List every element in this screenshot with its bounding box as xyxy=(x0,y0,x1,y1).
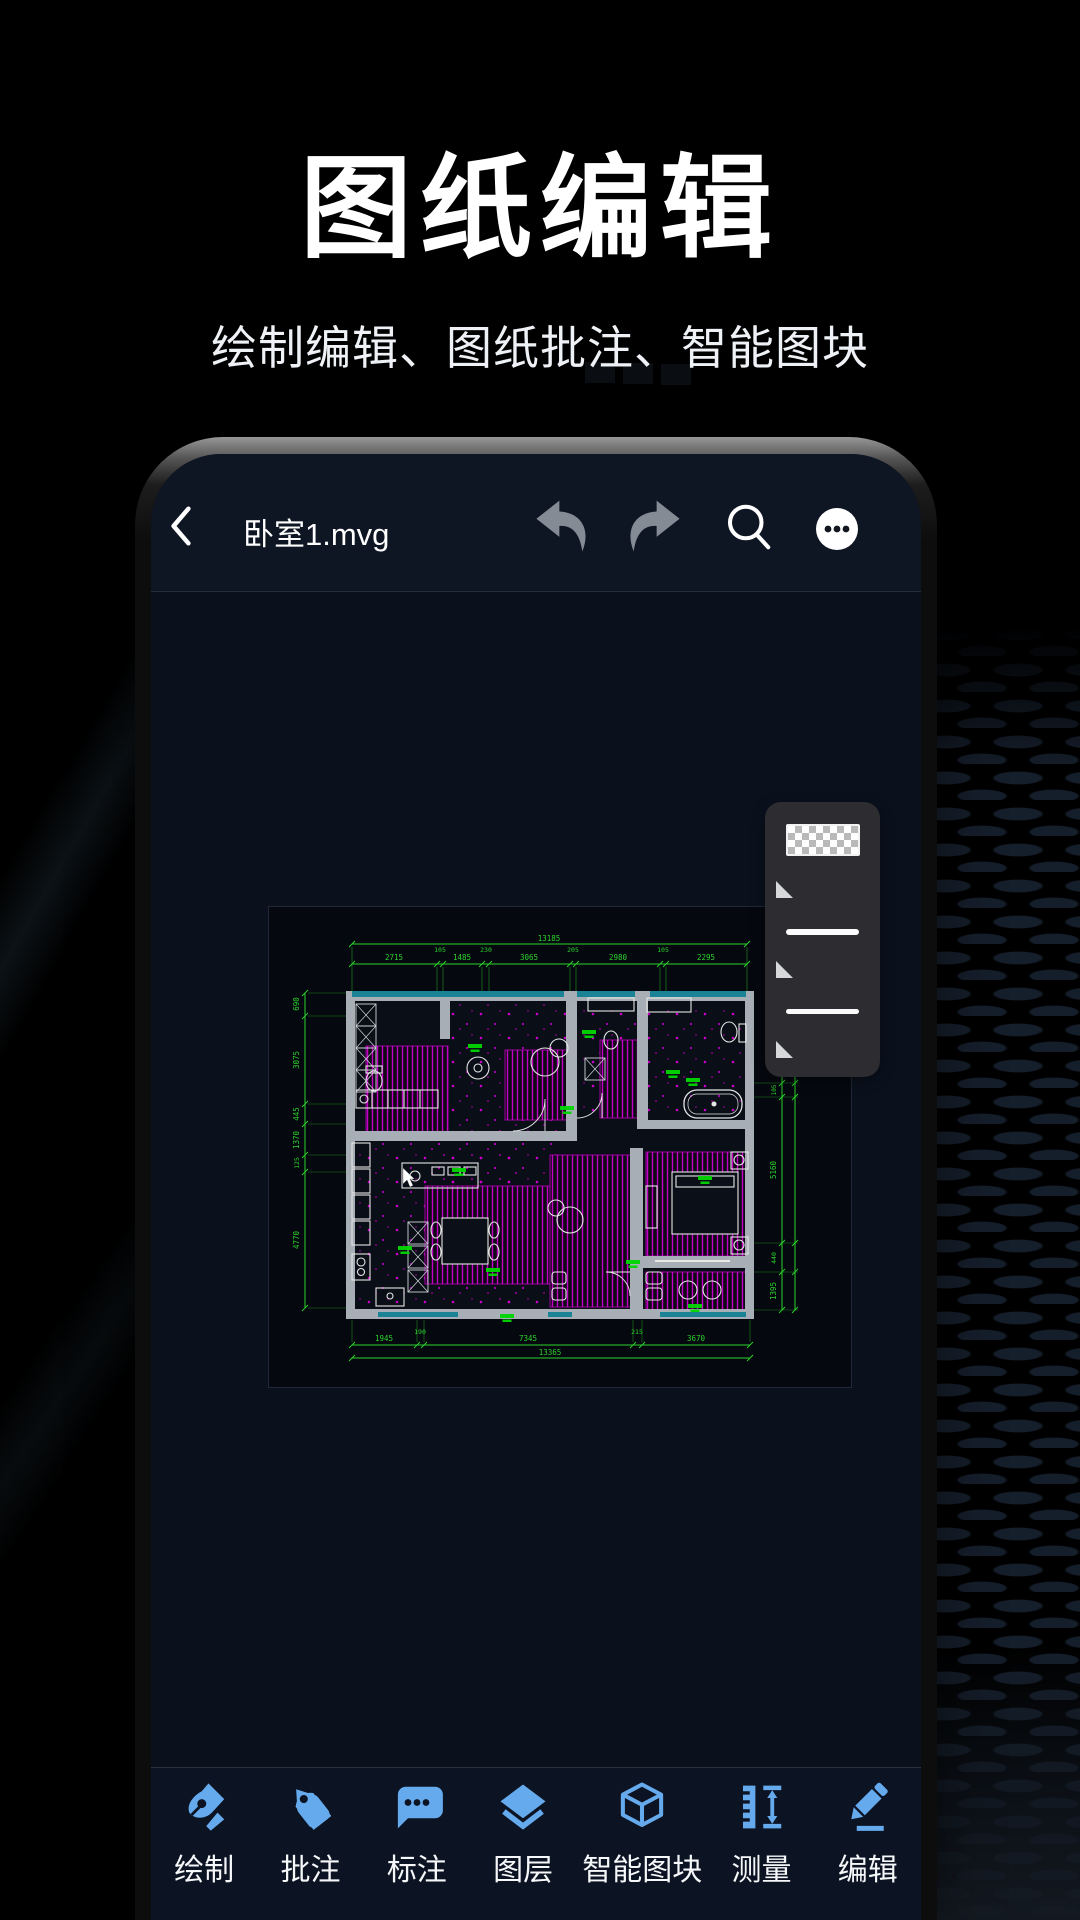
top-bar: 卧室1.mvg xyxy=(151,454,921,592)
redo-button[interactable] xyxy=(623,498,683,556)
more-button[interactable] xyxy=(815,507,859,551)
style-handle-icon[interactable] xyxy=(776,881,793,898)
search-button[interactable] xyxy=(721,500,775,556)
style-handle-icon[interactable] xyxy=(776,961,793,978)
background-shadow xyxy=(920,1640,1080,1920)
tool-dimension[interactable]: 标注 xyxy=(364,1768,470,1890)
svg-text:3075: 3075 xyxy=(292,1051,301,1069)
phone-mockup: 卧室1.mvg xyxy=(135,437,937,1920)
line-weight-thin[interactable] xyxy=(786,1009,859,1014)
undo-button[interactable] xyxy=(533,498,593,556)
svg-text:105: 105 xyxy=(657,946,669,954)
back-chevron-icon xyxy=(168,535,194,550)
svg-text:445: 445 xyxy=(292,1107,301,1121)
tool-label: 标注 xyxy=(387,1845,447,1889)
svg-text:230: 230 xyxy=(480,946,492,954)
svg-text:2980: 2980 xyxy=(609,953,628,962)
phone-screen: 卧室1.mvg xyxy=(151,454,921,1920)
redo-arrow-icon xyxy=(624,542,682,557)
back-button[interactable] xyxy=(161,504,201,550)
bottom-toolbar: 绘制 批注 xyxy=(151,1767,921,1920)
svg-text:2295: 2295 xyxy=(697,953,715,962)
tool-edit[interactable]: 编辑 xyxy=(815,1768,921,1890)
svg-text:205: 205 xyxy=(567,946,579,954)
hero-title: 图纸编辑 xyxy=(0,118,1080,280)
svg-text:1370: 1370 xyxy=(292,1130,301,1149)
tool-layers[interactable]: 图层 xyxy=(470,1768,576,1890)
svg-text:13365: 13365 xyxy=(539,1348,562,1357)
undo-arrow-icon xyxy=(534,542,592,557)
tool-draw[interactable]: 绘制 xyxy=(151,1768,257,1890)
svg-text:690: 690 xyxy=(292,997,301,1011)
tag-icon xyxy=(283,1780,337,1837)
svg-text:125: 125 xyxy=(293,1157,301,1169)
comment-bubble-icon xyxy=(390,1780,444,1837)
svg-text:3065: 3065 xyxy=(520,953,538,962)
tool-smart-blocks[interactable]: 智能图块 xyxy=(576,1768,708,1890)
tool-label: 绘制 xyxy=(174,1845,234,1889)
measure-ruler-icon xyxy=(734,1780,788,1837)
pen-nib-icon xyxy=(177,1780,231,1837)
hero-subtitle: 绘制编辑、图纸批注、智能图块 xyxy=(0,312,1080,378)
svg-text:1485: 1485 xyxy=(453,953,471,962)
cube-3d-icon xyxy=(615,1780,669,1837)
svg-text:105: 105 xyxy=(434,946,446,954)
window-line xyxy=(655,1260,730,1262)
svg-text:7345: 7345 xyxy=(519,1334,537,1343)
svg-text:4770: 4770 xyxy=(292,1230,301,1249)
file-title: 卧室1.mvg xyxy=(243,509,389,554)
promo-page: 图纸编辑 绘制编辑、图纸批注、智能图块 卧室1.mvg xyxy=(0,0,1080,1920)
svg-text:190: 190 xyxy=(414,1328,426,1336)
tool-measure[interactable]: 测量 xyxy=(708,1768,814,1890)
search-icon xyxy=(722,542,774,557)
svg-text:440: 440 xyxy=(770,1252,778,1264)
svg-text:105: 105 xyxy=(771,1084,778,1095)
svg-text:215: 215 xyxy=(631,1328,643,1336)
more-ellipsis-icon xyxy=(815,539,859,554)
svg-text:3670: 3670 xyxy=(687,1334,706,1343)
tool-label: 图层 xyxy=(493,1845,553,1889)
transparency-swatch[interactable] xyxy=(786,824,860,856)
svg-text:5160: 5160 xyxy=(769,1160,778,1179)
line-style-panel[interactable] xyxy=(765,802,880,1077)
tool-annotate[interactable]: 批注 xyxy=(257,1768,363,1890)
tool-label: 智能图块 xyxy=(582,1845,702,1889)
style-handle-icon[interactable] xyxy=(776,1041,793,1058)
svg-text:2715: 2715 xyxy=(385,953,403,962)
tool-label: 批注 xyxy=(280,1845,340,1889)
line-weight-thick[interactable] xyxy=(786,929,859,935)
svg-text:1945: 1945 xyxy=(375,1334,393,1343)
svg-text:1395: 1395 xyxy=(769,1282,778,1300)
layers-icon xyxy=(496,1780,550,1837)
pencil-icon xyxy=(841,1780,895,1837)
tool-label: 测量 xyxy=(731,1845,791,1889)
tool-label: 编辑 xyxy=(838,1845,898,1889)
svg-text:13185: 13185 xyxy=(538,934,561,943)
